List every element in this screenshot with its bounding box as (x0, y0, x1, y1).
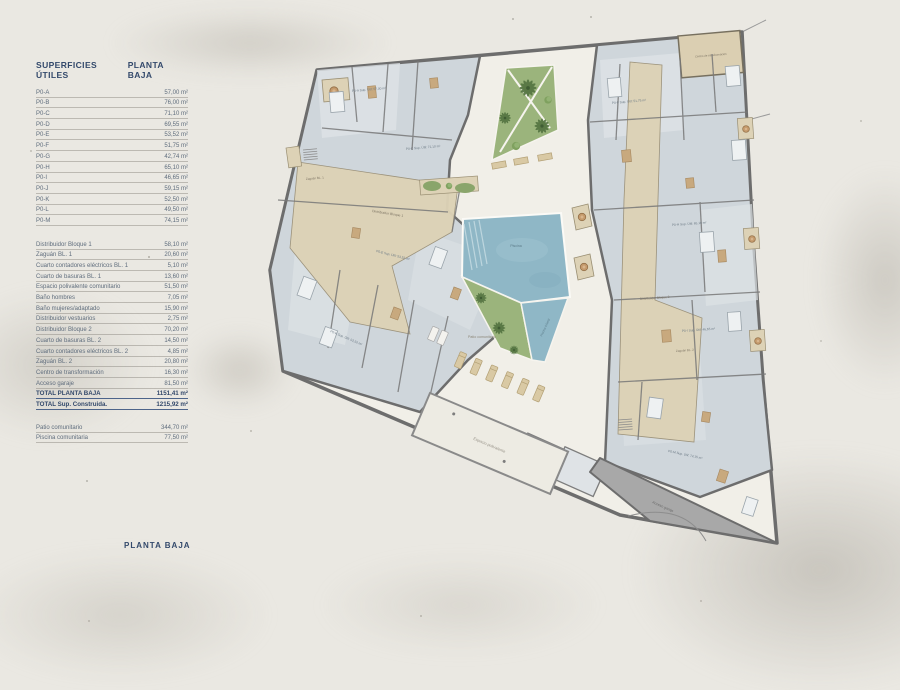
floor-plan-sheet: { "table": { "header": { "left": "SUPERF… (0, 0, 900, 636)
floor-plan-drawing: Centro de transformación (0, 0, 900, 636)
pool-label: Piscina (510, 244, 522, 248)
patio-label: Patio comunitario (468, 335, 496, 339)
